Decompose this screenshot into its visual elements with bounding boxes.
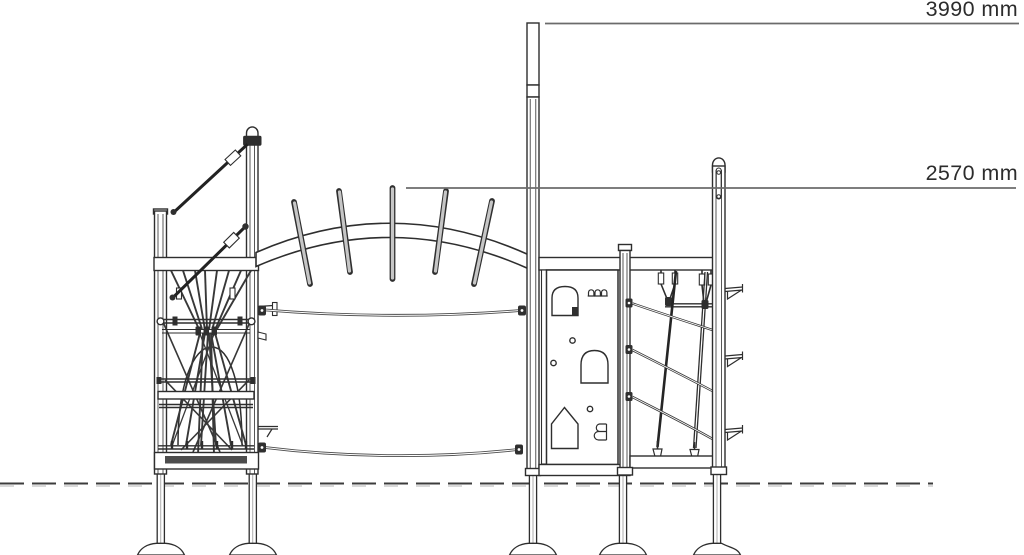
pole-steps: [725, 284, 743, 440]
slack-rope-upper: [258, 306, 526, 316]
net-bottom: [618, 441, 714, 475]
tower-bottom-beam: [155, 453, 259, 470]
net-climber: [618, 245, 714, 476]
left-tower: [154, 127, 279, 474]
elevation-drawing: [0, 0, 1024, 555]
right-pole: [711, 158, 743, 475]
elevation-drawing-page: 3990 mm 2570 mm: [0, 0, 1024, 555]
rope-ladder: [170, 139, 254, 301]
ground-line: [0, 484, 933, 487]
panel-bottom-beam: [539, 465, 630, 476]
slack-rope-lower: [258, 443, 523, 456]
arch-climber: [256, 188, 528, 284]
center-pole: [526, 23, 541, 476]
ground-footings: [138, 469, 741, 555]
tower-post-right-cap: [247, 127, 259, 137]
tower-side-peg: [258, 303, 278, 438]
